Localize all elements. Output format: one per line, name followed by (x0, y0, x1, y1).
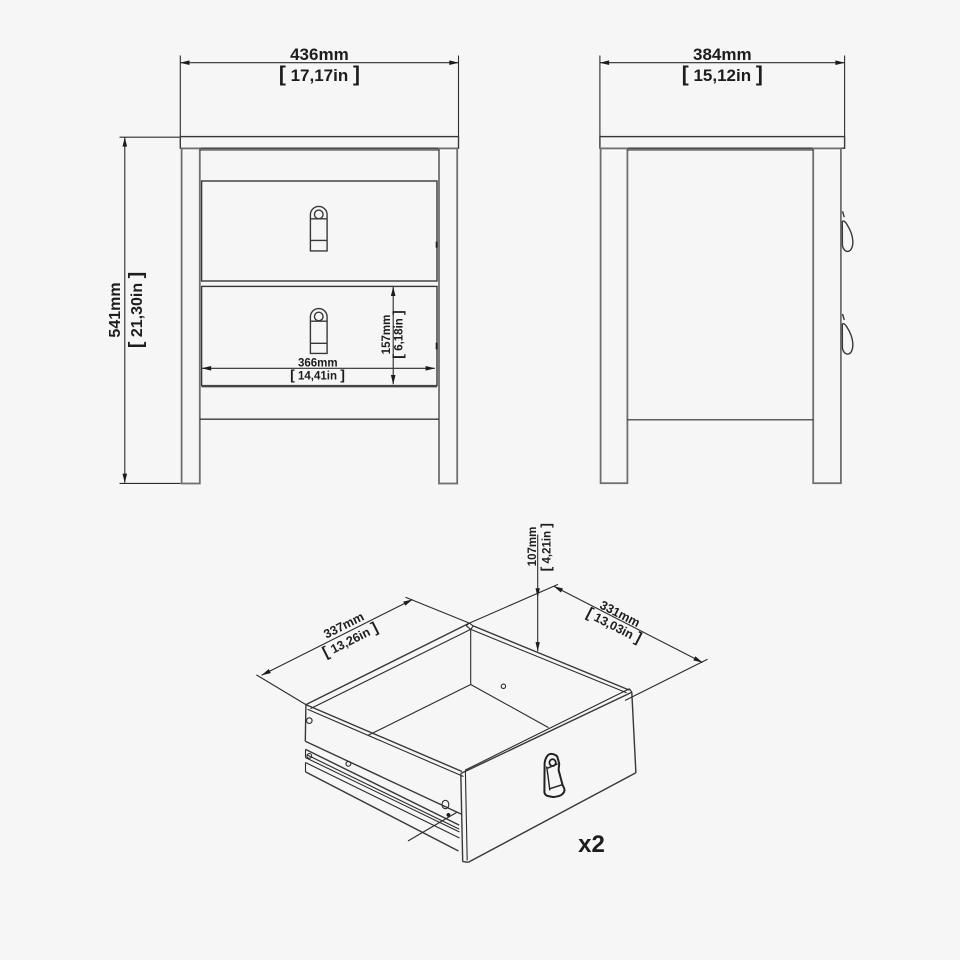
svg-text:384mm: 384mm (693, 45, 752, 64)
svg-text:[ 21,30in ]: [ 21,30in ] (125, 272, 147, 348)
svg-text:436mm: 436mm (290, 45, 349, 64)
svg-text:366mm: 366mm (298, 357, 338, 369)
svg-text:[ 15,12in ]: [ 15,12in ] (682, 63, 763, 86)
svg-text:x2: x2 (578, 831, 605, 858)
svg-text:157mm: 157mm (381, 315, 393, 355)
svg-text:[ 17,17in ]: [ 17,17in ] (279, 63, 360, 86)
svg-text:[ 4,21in ]: [ 4,21in ] (538, 523, 554, 571)
svg-text:107mm: 107mm (527, 527, 539, 567)
svg-text:541mm: 541mm (107, 282, 124, 337)
